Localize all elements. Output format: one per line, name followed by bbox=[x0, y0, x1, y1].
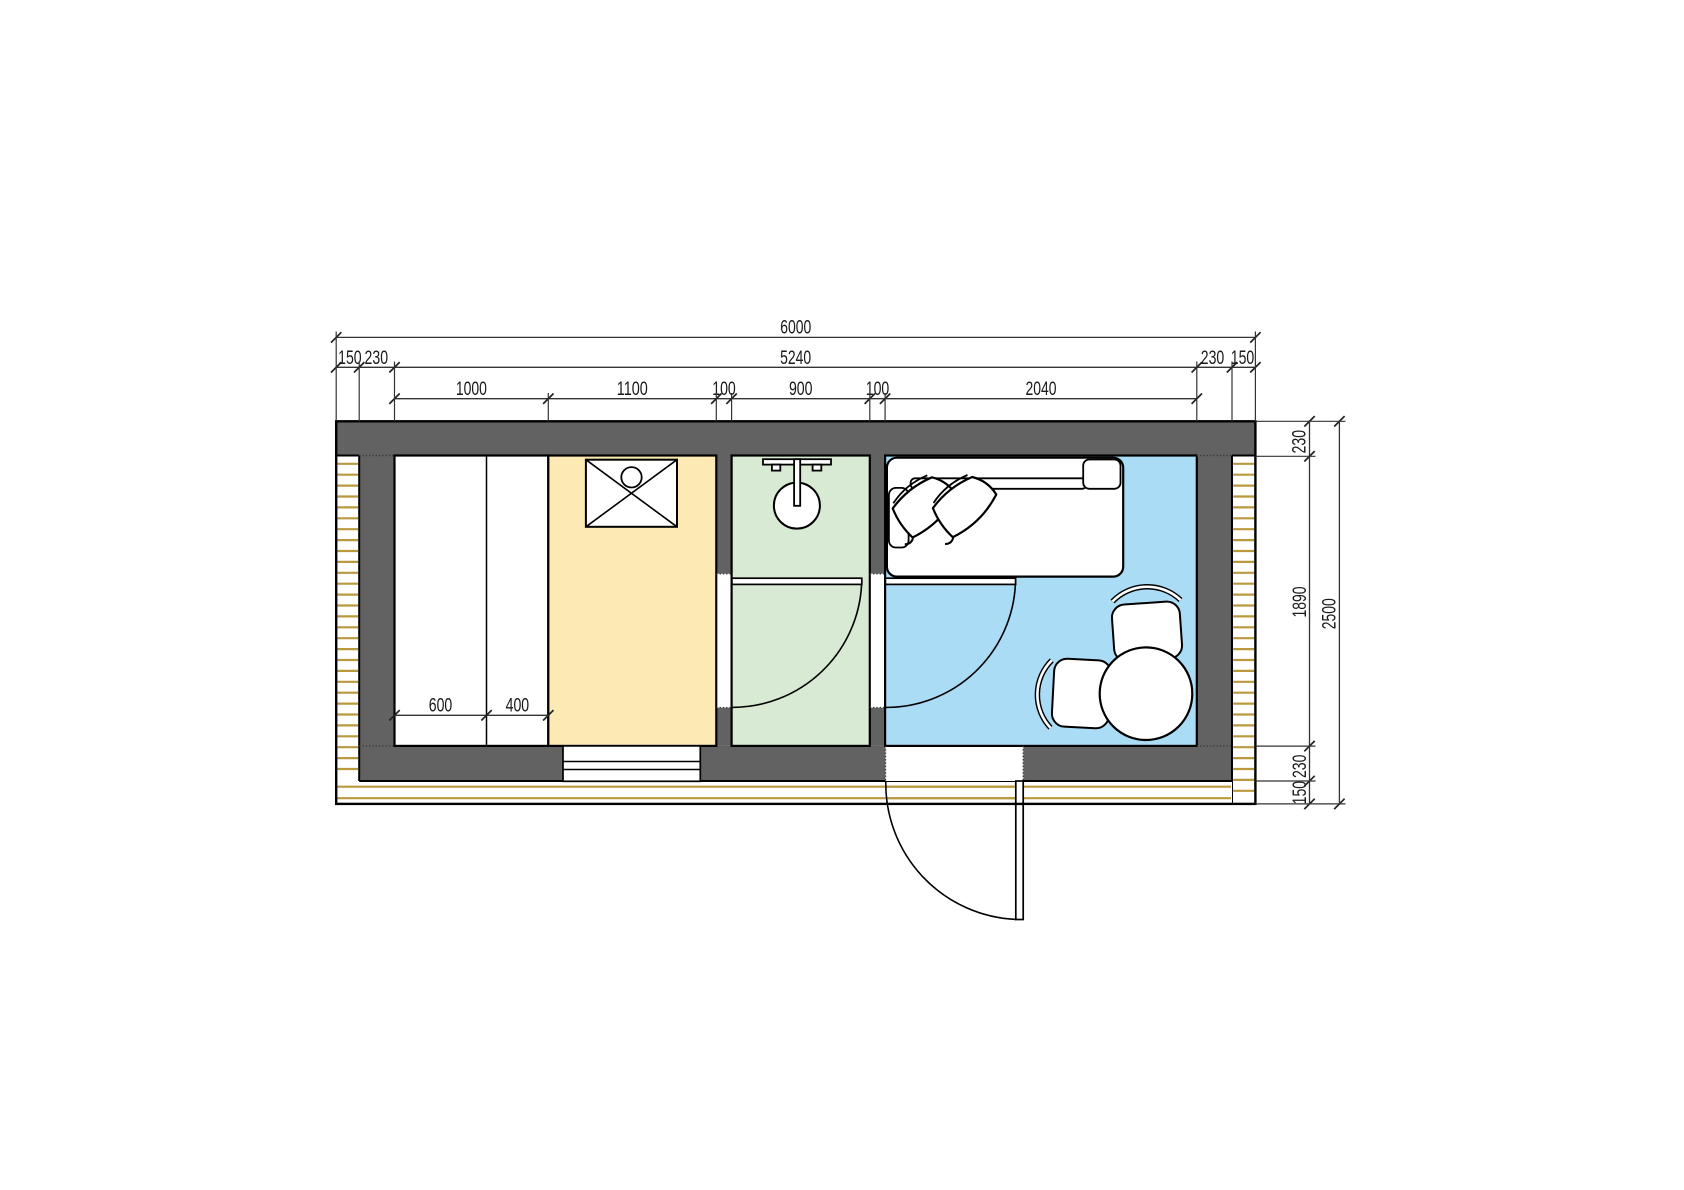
svg-text:230: 230 bbox=[1289, 430, 1311, 454]
svg-text:1000: 1000 bbox=[456, 378, 487, 400]
svg-text:600: 600 bbox=[429, 694, 453, 716]
svg-text:150: 150 bbox=[338, 347, 362, 369]
svg-text:230: 230 bbox=[1201, 347, 1225, 369]
svg-text:2500: 2500 bbox=[1318, 598, 1340, 629]
svg-text:230: 230 bbox=[365, 347, 389, 369]
svg-text:1890: 1890 bbox=[1289, 586, 1311, 617]
svg-text:150: 150 bbox=[1289, 781, 1311, 805]
svg-text:150: 150 bbox=[1231, 347, 1255, 369]
svg-text:230: 230 bbox=[1289, 754, 1311, 778]
svg-text:900: 900 bbox=[789, 378, 813, 400]
svg-text:5240: 5240 bbox=[780, 347, 811, 369]
svg-text:1100: 1100 bbox=[617, 378, 648, 400]
svg-text:6000: 6000 bbox=[780, 317, 811, 339]
svg-text:2040: 2040 bbox=[1026, 378, 1057, 400]
svg-text:400: 400 bbox=[506, 694, 530, 716]
